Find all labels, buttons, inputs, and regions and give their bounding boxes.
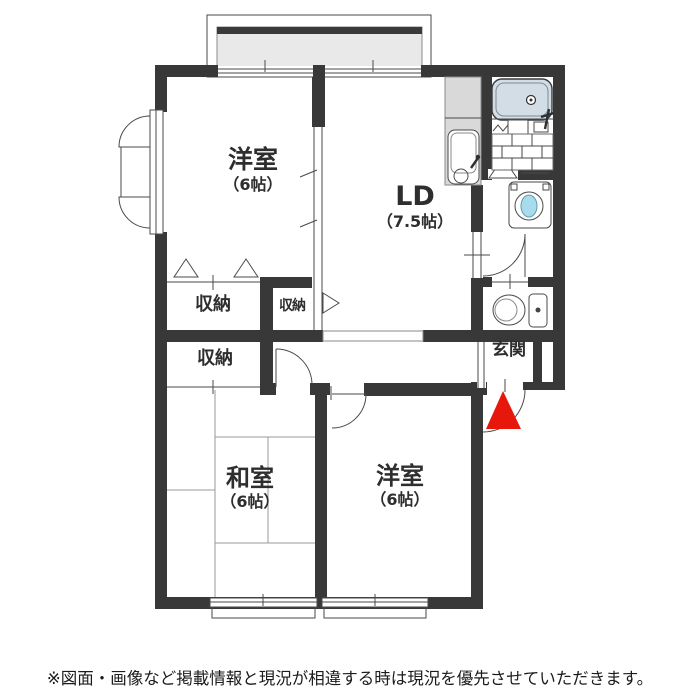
label-yoshitsu1: 洋室 （6帖） [188,146,318,193]
room-size: （6帖） [188,176,318,194]
floor-plan-page: 洋室 （6帖） LD （7.5帖） 収納 収納 収納 和室 （6帖） 洋室 （6… [0,0,700,700]
disclaimer-text: ※図面・画像など掲載情報と現況が相違する時は現況を優先させていただきます。 [0,665,700,689]
floor-plan-drawing [0,0,700,700]
room-size: （7.5帖） [350,213,480,231]
room-name: 洋室 [335,463,465,489]
label-ld: LD （7.5帖） [350,182,480,230]
room-name: 玄関 [482,341,536,360]
label-closet1: 収納 [163,295,263,315]
entrance-marker-icon [486,391,521,429]
room-size: （6帖） [335,491,465,509]
room-name: 収納 [165,349,265,369]
room-name: 収納 [262,299,322,314]
room-name: LD [350,182,480,212]
toilet-icon [493,294,547,327]
label-genkan: 玄関 [482,341,536,360]
label-washitsu: 和室 （6帖） [185,465,315,511]
casement-window-icon [119,110,163,234]
washing-machine-icon [509,182,551,228]
kitchen-sink-icon [445,77,481,185]
room-name: 収納 [163,295,263,315]
label-closet2: 収納 [262,299,322,314]
label-yoshitsu2: 洋室 （6帖） [335,463,465,509]
room-name: 洋室 [188,146,318,174]
bathroom-tile-floor [492,134,553,170]
room-name: 和室 [185,465,315,491]
label-closet3: 収納 [165,349,265,369]
bathtub-icon [492,79,552,120]
room-size: （6帖） [185,493,315,511]
